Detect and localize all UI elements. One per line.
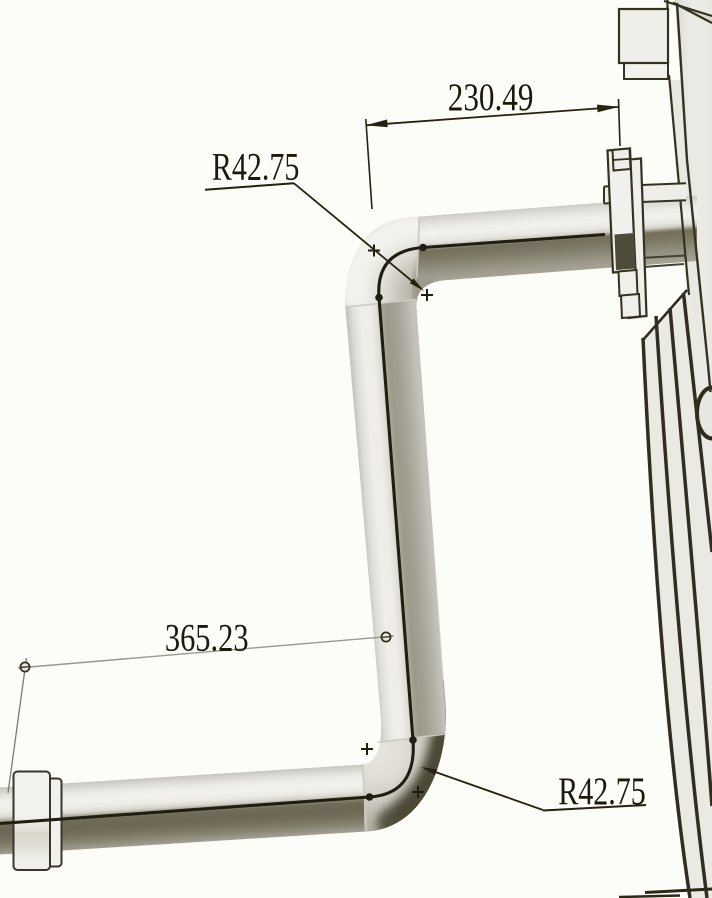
svg-text:365.23: 365.23 — [165, 616, 249, 659]
svg-text:R42.75: R42.75 — [558, 769, 646, 813]
svg-text:230.49: 230.49 — [448, 76, 534, 119]
svg-text:R42.75: R42.75 — [212, 145, 300, 189]
